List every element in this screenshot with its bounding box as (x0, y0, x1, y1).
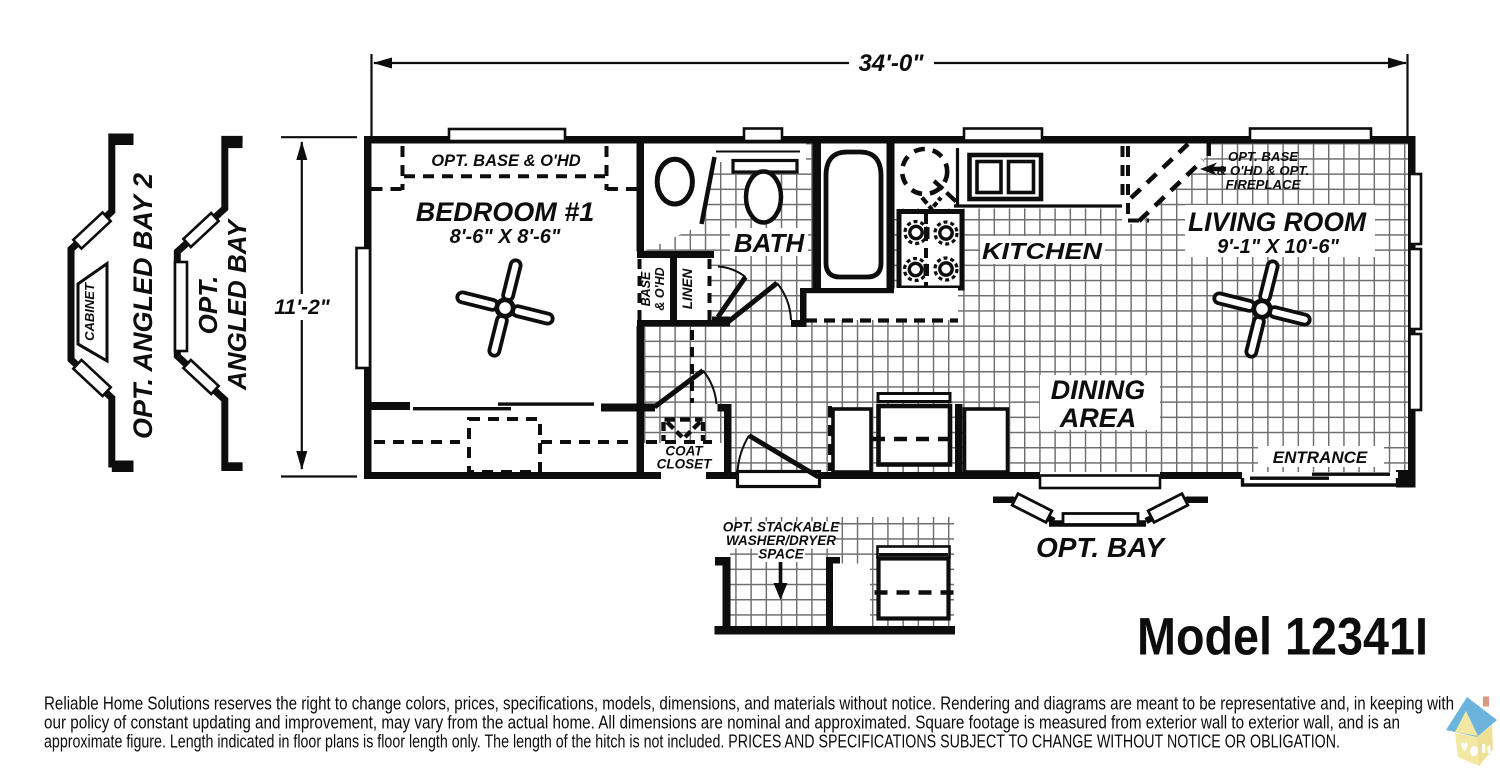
svg-text:LINEN: LINEN (680, 268, 695, 309)
svg-text:DINING: DINING (1051, 375, 1146, 405)
svg-text:8'-6" X 8'-6": 8'-6" X 8'-6" (450, 226, 561, 248)
svg-text:OPT. BASE & O'HD: OPT. BASE & O'HD (431, 152, 580, 170)
svg-text:our policy of constant updatin: our policy of constant updating and impr… (44, 713, 1400, 733)
svg-text:OPT. BASE: OPT. BASE (1228, 149, 1299, 164)
svg-text:34'-0": 34'-0" (858, 50, 924, 77)
svg-text:OPT. BAY: OPT. BAY (1036, 532, 1166, 563)
svg-text:Reliable Home Solutions reserv: Reliable Home Solutions reserves the rig… (44, 694, 1454, 714)
svg-text:LIVING ROOM: LIVING ROOM (1188, 207, 1366, 237)
svg-text:& O'HD & OPT.: & O'HD & OPT. (1217, 163, 1309, 178)
svg-text:BATH: BATH (734, 228, 806, 258)
svg-text:& O'HD: & O'HD (653, 267, 667, 310)
svg-text:Model 12341I: Model 12341I (1137, 608, 1428, 667)
svg-text:SPACE: SPACE (758, 547, 805, 562)
svg-text:BEDROOM #1: BEDROOM #1 (416, 197, 595, 227)
svg-text:ENTRANCE: ENTRANCE (1273, 448, 1368, 467)
svg-text:FIREPLACE: FIREPLACE (1226, 177, 1302, 192)
svg-text:BASE: BASE (639, 271, 653, 306)
svg-text:OPT. ANGLED BAY 2: OPT. ANGLED BAY 2 (128, 173, 158, 439)
svg-text:CLOSET: CLOSET (657, 457, 714, 472)
svg-text:9'-1" X 10'-6": 9'-1" X 10'-6" (1217, 236, 1339, 258)
svg-text:approximate figure. Length ind: approximate figure. Length indicated in … (44, 732, 1340, 752)
svg-text:11'-2": 11'-2" (274, 296, 330, 319)
svg-text:AREA: AREA (1059, 403, 1137, 433)
svg-text:CABINET: CABINET (82, 282, 97, 341)
svg-text:OPT.: OPT. (193, 276, 223, 335)
svg-text:ANGLED BAY: ANGLED BAY (222, 217, 252, 391)
svg-text:KITCHEN: KITCHEN (982, 238, 1103, 264)
